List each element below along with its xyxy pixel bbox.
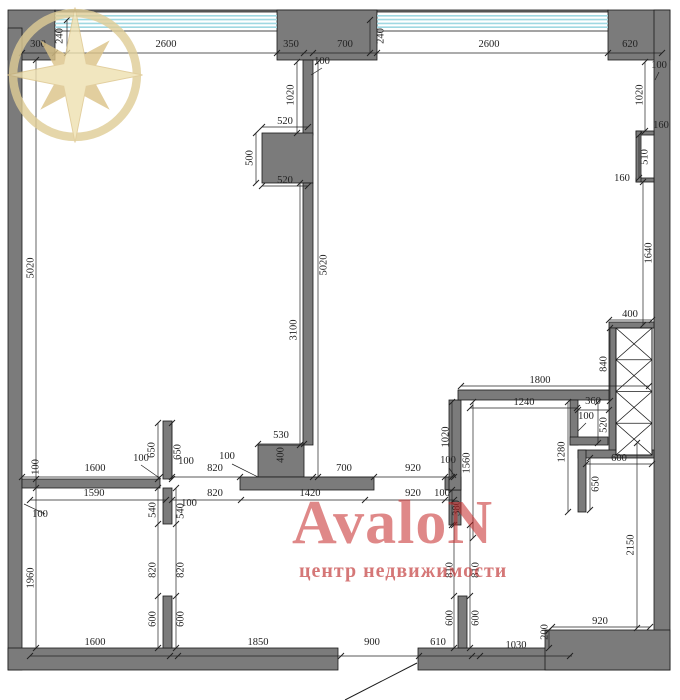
dimension-label: 100 xyxy=(651,60,667,71)
dimension-label: 1850 xyxy=(248,637,269,648)
wall xyxy=(654,10,670,670)
dimension-label: 900 xyxy=(364,637,380,648)
dimension-label: 240 xyxy=(55,28,66,44)
dimension-label: 610 xyxy=(430,637,446,648)
wall xyxy=(22,479,160,488)
dimension-label: 520 xyxy=(599,417,610,433)
dimension-label: 530 xyxy=(273,430,289,441)
wall xyxy=(163,596,172,648)
dimension-label: 240 xyxy=(376,28,387,44)
dimension-label: 300 xyxy=(30,39,46,50)
dimension-label: 5020 xyxy=(319,255,330,276)
dimension-label: 100 xyxy=(578,411,594,422)
leader-line xyxy=(232,464,258,477)
dimension-label: 2600 xyxy=(479,39,500,50)
dimension-label: 100 xyxy=(219,451,235,462)
dimension-label: 600 xyxy=(148,611,159,627)
dimension-label: 1800 xyxy=(530,375,551,386)
dimension-label: 700 xyxy=(337,39,353,50)
dimension-label: 600 xyxy=(445,610,456,626)
wall xyxy=(163,488,172,524)
dimension-label: 360 xyxy=(585,396,601,407)
dimension-label: 820 xyxy=(207,488,223,499)
dimension-label: 520 xyxy=(277,175,293,186)
dimension-label: 510 xyxy=(640,149,651,165)
dimension-label: 1280 xyxy=(557,442,568,463)
window xyxy=(377,12,608,31)
dimension-label: 1960 xyxy=(26,568,37,589)
wall xyxy=(458,596,467,648)
dimension-label: 920 xyxy=(405,463,421,474)
wall xyxy=(8,648,338,670)
dimension-label: 1020 xyxy=(441,427,452,448)
dimension-label: 700 xyxy=(336,463,352,474)
dimension-label: 100 xyxy=(314,56,330,67)
wall xyxy=(277,10,377,60)
wall xyxy=(163,421,172,479)
dimension-label: 920 xyxy=(592,616,608,627)
dimension-label: 650 xyxy=(591,476,602,492)
dimension-label: 820 xyxy=(207,463,223,474)
dimension-label: 600 xyxy=(471,610,482,626)
dimension-label: 160 xyxy=(614,173,630,184)
dimension-label: 810 xyxy=(471,562,482,578)
dimension-label: 1600 xyxy=(85,463,106,474)
dimension-label: 100 xyxy=(31,459,42,475)
dimension-label: 2150 xyxy=(626,535,637,556)
dimension-label: 500 xyxy=(245,150,256,166)
window xyxy=(55,12,277,31)
dimension-label: 540 xyxy=(148,502,159,518)
wall xyxy=(303,183,313,445)
dimension-label: 100 xyxy=(32,509,48,520)
wall xyxy=(303,60,313,135)
door-swing xyxy=(345,663,417,700)
dimension-label: 1030 xyxy=(506,640,527,651)
dimension-label: 100 xyxy=(178,456,194,467)
dimension-label: 840 xyxy=(599,356,610,372)
leader-line xyxy=(578,423,586,431)
dimension-label: 1240 xyxy=(514,397,535,408)
dimension-label: 100 xyxy=(440,455,456,466)
dimension-label: 100 xyxy=(434,488,450,499)
dimension-label: 1590 xyxy=(84,488,105,499)
dimension-label: 520 xyxy=(277,116,293,127)
dimension-label: 400 xyxy=(622,309,638,320)
dimension-label: 160 xyxy=(653,120,669,131)
dimension-label: 100 xyxy=(181,498,197,509)
dimension-label: 820 xyxy=(176,562,187,578)
dimension-label: 1640 xyxy=(644,243,655,264)
dimension-label: 1020 xyxy=(635,85,646,106)
wall xyxy=(570,437,608,445)
dimension-label: 600 xyxy=(176,611,187,627)
dimension-label: 380 xyxy=(452,500,463,516)
dimension-label: 600 xyxy=(611,453,627,464)
dimension-label: 350 xyxy=(283,39,299,50)
dimension-label: 920 xyxy=(405,488,421,499)
dimension-label: 820 xyxy=(148,562,159,578)
wall xyxy=(545,630,670,670)
floor-plan-drawing: 2403002600350700240260062010010010201020… xyxy=(0,0,680,700)
dimension-label: 1560 xyxy=(462,453,473,474)
dimension-label: 810 xyxy=(445,562,456,578)
dimension-label: 400 xyxy=(276,447,287,463)
wall xyxy=(609,322,654,328)
dimension-label: 1420 xyxy=(300,488,321,499)
floor-plan-page: 2403002600350700240260062010010010201020… xyxy=(0,0,680,700)
dimension-label: 1020 xyxy=(286,85,297,106)
dimension-label: 2600 xyxy=(156,39,177,50)
dimension-label: 620 xyxy=(622,39,638,50)
wall xyxy=(8,28,22,670)
wall xyxy=(578,450,586,512)
dimension-label: 5020 xyxy=(26,258,37,279)
dimension-label: 650 xyxy=(147,442,158,458)
dimension-label: 200 xyxy=(540,624,551,640)
dimension-label: 3100 xyxy=(289,320,300,341)
dimension-label: 1600 xyxy=(85,637,106,648)
